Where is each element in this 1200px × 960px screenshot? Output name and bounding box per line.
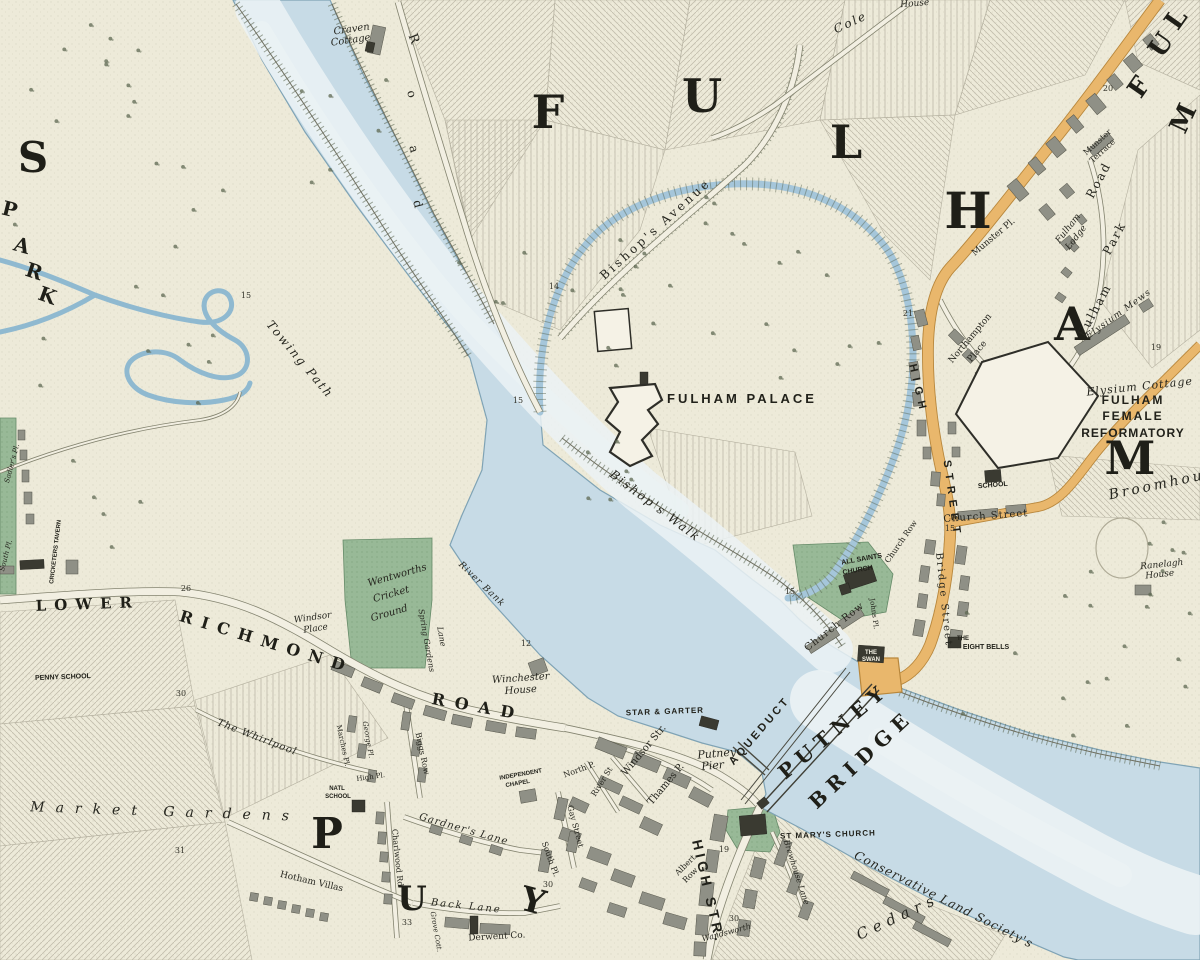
map-label: 31	[175, 846, 185, 855]
map-label: L	[830, 115, 862, 169]
map-label: Pier	[700, 758, 725, 773]
map-label: 30	[729, 914, 739, 923]
building	[959, 575, 970, 590]
building	[519, 789, 537, 804]
map-label: SCHOOL	[325, 794, 351, 800]
map-label: 15	[241, 291, 251, 300]
building	[305, 908, 314, 917]
map-screenshot: SPARKFULHAMPUYFULMCravenCottageHouseCole…	[0, 0, 1200, 960]
building	[20, 559, 44, 569]
map-label: FULHAM	[1102, 393, 1165, 407]
map-label: THE	[865, 650, 877, 656]
building	[917, 420, 926, 436]
map-label: 26	[181, 584, 191, 593]
building	[931, 472, 941, 487]
building	[937, 494, 946, 507]
map-label: 15	[945, 524, 955, 533]
building	[352, 800, 365, 812]
building	[319, 912, 328, 921]
building	[948, 422, 956, 434]
building	[18, 430, 25, 440]
building	[24, 492, 32, 504]
map-label: F	[532, 85, 565, 139]
map-label: 12	[521, 639, 531, 648]
map-label: 14	[549, 282, 559, 291]
map-label: EIGHT BELLS	[963, 644, 1010, 651]
map-label: H	[944, 181, 991, 240]
map-label: House	[503, 684, 537, 697]
map-label: FEMALE	[1102, 409, 1163, 423]
building	[445, 917, 470, 929]
map-label: SWAN	[862, 657, 880, 663]
map-label: 19	[719, 845, 729, 854]
map-label: P	[311, 809, 343, 858]
map-label: LOWER	[35, 593, 140, 615]
map-label: 30	[543, 880, 553, 889]
field-plot	[0, 706, 225, 846]
building	[694, 942, 706, 956]
map-label: 21	[903, 309, 913, 318]
building	[26, 514, 34, 524]
map-label: U	[682, 69, 722, 123]
map-label: 30	[176, 689, 186, 698]
building	[380, 852, 389, 863]
map-canvas: SPARKFULHAMPUYFULMCravenCottageHouseCole…	[0, 0, 1200, 960]
building	[1135, 585, 1151, 595]
building	[923, 447, 931, 459]
map-label: 33	[402, 918, 412, 927]
building	[376, 812, 385, 825]
building	[22, 470, 29, 482]
building	[249, 892, 258, 901]
map-label: S	[18, 133, 48, 182]
field-plot	[0, 822, 252, 960]
map-label: REFORMATORY	[1081, 426, 1184, 440]
map-label: 15	[513, 396, 523, 405]
building	[470, 916, 478, 934]
map-label: THE	[957, 636, 969, 642]
building	[919, 565, 930, 582]
building	[739, 814, 767, 836]
building	[291, 904, 300, 913]
building	[384, 894, 393, 905]
building	[263, 896, 272, 905]
building	[917, 593, 928, 608]
palace-outbuilding	[594, 309, 631, 352]
map-label: 15	[785, 587, 795, 596]
building	[277, 900, 286, 909]
building	[66, 560, 78, 574]
building	[378, 832, 387, 845]
green-area	[343, 538, 432, 668]
building	[952, 447, 960, 457]
map-label: FULHAM PALACE	[667, 391, 817, 406]
building	[382, 872, 391, 883]
building	[20, 450, 27, 460]
map-label: NATL	[329, 786, 345, 792]
map-label: 20	[1103, 84, 1113, 93]
map-label: 19	[1151, 343, 1161, 352]
building	[955, 545, 967, 564]
field-plot	[0, 600, 195, 724]
